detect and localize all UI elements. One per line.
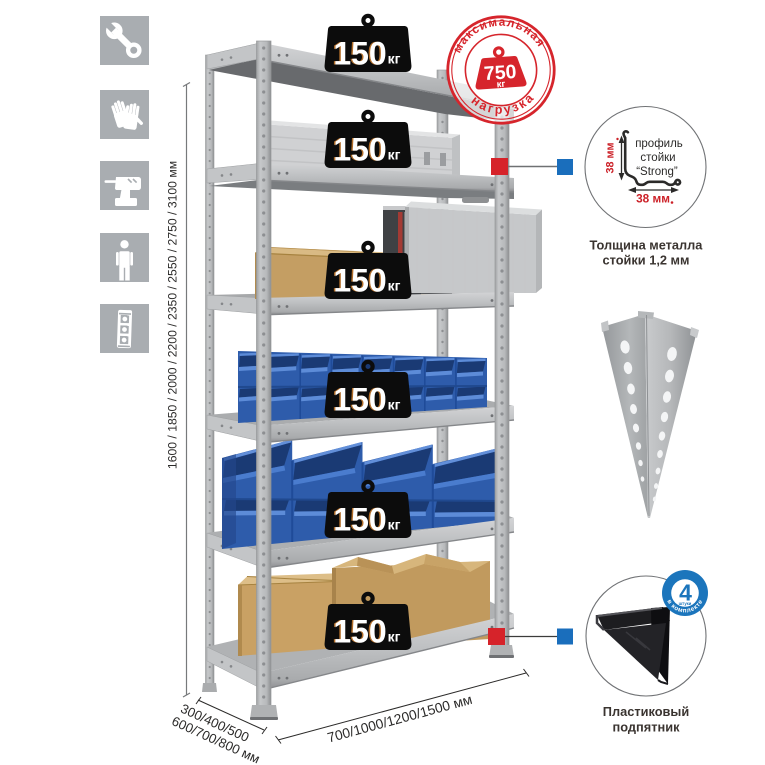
svg-text:1600 / 1850 / 2000 / 2200 / 23: 1600 / 1850 / 2000 / 2200 / 2350 / 2550 … (166, 161, 180, 469)
svg-text:38 мм: 38 мм (636, 192, 670, 206)
svg-text:150: 150 (333, 36, 386, 72)
svg-text:кг: кг (496, 79, 506, 91)
svg-text:150: 150 (333, 502, 386, 538)
svg-text:38 мм: 38 мм (605, 142, 617, 173)
svg-text:кг: кг (388, 278, 401, 294)
svg-text:150: 150 (333, 382, 386, 418)
svg-text:кг: кг (388, 397, 401, 413)
svg-text:кг: кг (388, 629, 401, 645)
svg-text:штуки: штуки (679, 601, 692, 606)
svg-text:150: 150 (333, 132, 386, 168)
svg-text:150: 150 (333, 263, 386, 299)
svg-text:профиль: профиль (635, 138, 683, 150)
svg-text:кг: кг (388, 147, 401, 163)
svg-text:подпятник: подпятник (613, 720, 681, 735)
svg-text:“Strong”: “Strong” (636, 166, 678, 178)
svg-text:стойки: стойки (640, 152, 675, 164)
svg-text:Толщина металла: Толщина металла (590, 238, 704, 253)
svg-text:стойки 1,2 мм: стойки 1,2 мм (602, 253, 689, 268)
svg-text:кг: кг (388, 517, 401, 533)
svg-text:Пластиковый: Пластиковый (603, 704, 689, 719)
svg-text:150: 150 (333, 614, 386, 650)
svg-text:кг: кг (388, 51, 401, 67)
